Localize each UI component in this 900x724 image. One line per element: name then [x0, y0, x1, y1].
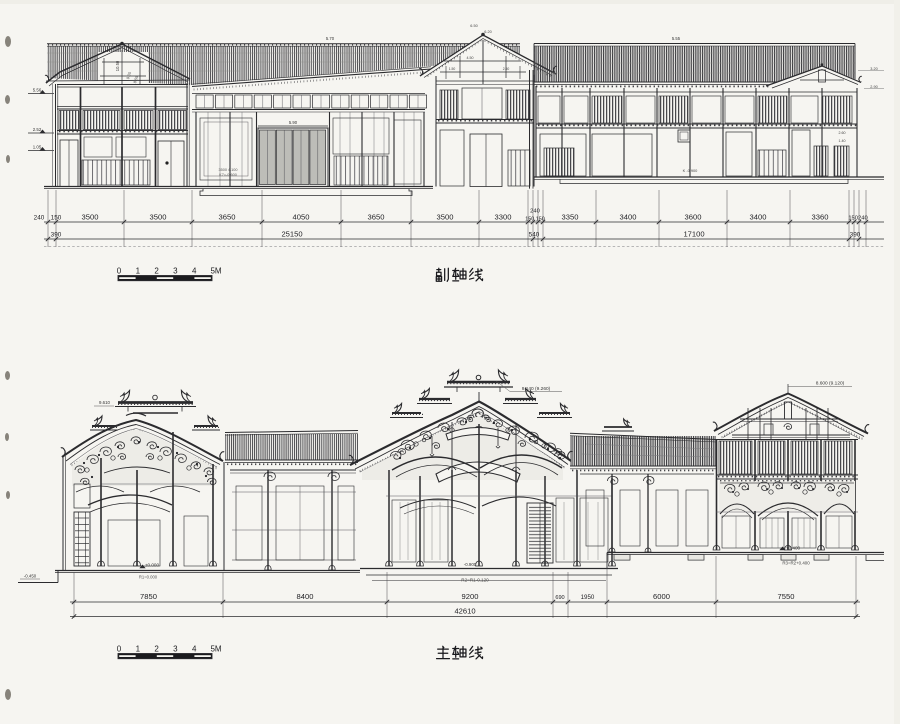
svg-text:3400: 3400: [620, 213, 637, 222]
svg-text:R2=R1-0.120: R2=R1-0.120: [461, 578, 489, 583]
svg-text:150240: 150240: [848, 216, 867, 222]
svg-text:3: 3: [173, 266, 178, 275]
svg-text:1: 1: [136, 644, 141, 653]
svg-text:3360: 3360: [812, 213, 829, 222]
svg-text:3: 3: [173, 644, 178, 653]
svg-text:9.140 (9.260): 9.140 (9.260): [522, 386, 551, 392]
svg-text:2.60: 2.60: [839, 131, 846, 135]
svg-text:4: 4: [192, 266, 197, 275]
svg-text:150 150: 150 150: [525, 217, 545, 223]
svg-text:4: 4: [192, 644, 197, 653]
svg-text:690: 690: [555, 595, 564, 601]
svg-text:390: 390: [51, 232, 62, 239]
svg-text:-0.450: -0.450: [24, 574, 37, 579]
svg-text:5.90: 5.90: [289, 120, 298, 125]
svg-text:540: 540: [529, 232, 540, 239]
svg-text:42610: 42610: [454, 607, 475, 616]
svg-text:17100: 17100: [683, 230, 704, 239]
svg-text:2: 2: [154, 644, 159, 653]
svg-text:2.50: 2.50: [503, 67, 510, 71]
svg-text:5M: 5M: [210, 266, 221, 275]
svg-text:R3=R2+0.400: R3=R2+0.400: [782, 561, 810, 566]
svg-text:3650: 3650: [368, 213, 385, 222]
svg-text:10.50: 10.50: [115, 60, 120, 71]
svg-text:5M: 5M: [210, 644, 221, 653]
svg-text:-0.900: -0.900: [464, 562, 477, 567]
svg-text:2.52: 2.52: [33, 127, 42, 132]
svg-text:+0.400: +0.400: [786, 546, 801, 551]
svg-text:3350: 3350: [562, 213, 579, 222]
svg-text:2: 2: [154, 266, 159, 275]
svg-text:5.56: 5.56: [33, 88, 42, 93]
svg-text:3500: 3500: [82, 213, 99, 222]
svg-text:7850: 7850: [140, 592, 157, 601]
svg-text:3400: 3400: [750, 213, 767, 222]
svg-text:K7=-0.600: K7=-0.600: [219, 173, 237, 177]
svg-text:7550: 7550: [778, 592, 795, 601]
svg-text:150: 150: [51, 215, 62, 222]
svg-text:240: 240: [34, 215, 45, 222]
svg-text:3500: 3500: [150, 213, 167, 222]
svg-text:±0.000: ±0.000: [145, 563, 159, 568]
svg-text:5.55: 5.55: [672, 36, 681, 41]
svg-text:3650: 3650: [219, 213, 236, 222]
svg-text:0: 0: [117, 266, 122, 275]
svg-text:8.600 (9.120): 8.600 (9.120): [816, 381, 845, 387]
svg-text:1.40: 1.40: [839, 139, 846, 143]
svg-text:4.50: 4.50: [467, 56, 474, 60]
svg-text:390: 390: [850, 232, 861, 239]
svg-text:5.70: 5.70: [326, 36, 335, 41]
svg-text:3500: 3500: [437, 213, 454, 222]
svg-text:1950: 1950: [581, 594, 595, 601]
svg-text:9.610: 9.610: [99, 400, 111, 405]
svg-text:9200: 9200: [462, 592, 479, 601]
svg-text:1.05: 1.05: [33, 145, 42, 150]
svg-text:6000: 6000: [653, 592, 670, 601]
svg-text:K -0.900: K -0.900: [683, 168, 699, 173]
svg-text:4050: 4050: [293, 213, 310, 222]
svg-text:240: 240: [530, 209, 540, 215]
svg-text:1: 1: [136, 266, 141, 275]
svg-text:R1=0.000: R1=0.000: [139, 575, 158, 580]
svg-text:3600: 3600: [685, 213, 702, 222]
svg-text:1.50: 1.50: [449, 67, 456, 71]
svg-text:3500 4.100: 3500 4.100: [218, 168, 237, 172]
svg-text:6.50: 6.50: [470, 24, 477, 28]
svg-text:0: 0: [117, 644, 122, 653]
svg-text:6.20: 6.20: [484, 30, 491, 34]
svg-text:3300: 3300: [495, 213, 512, 222]
svg-text:8400: 8400: [297, 592, 314, 601]
svg-text:25150: 25150: [281, 230, 302, 239]
